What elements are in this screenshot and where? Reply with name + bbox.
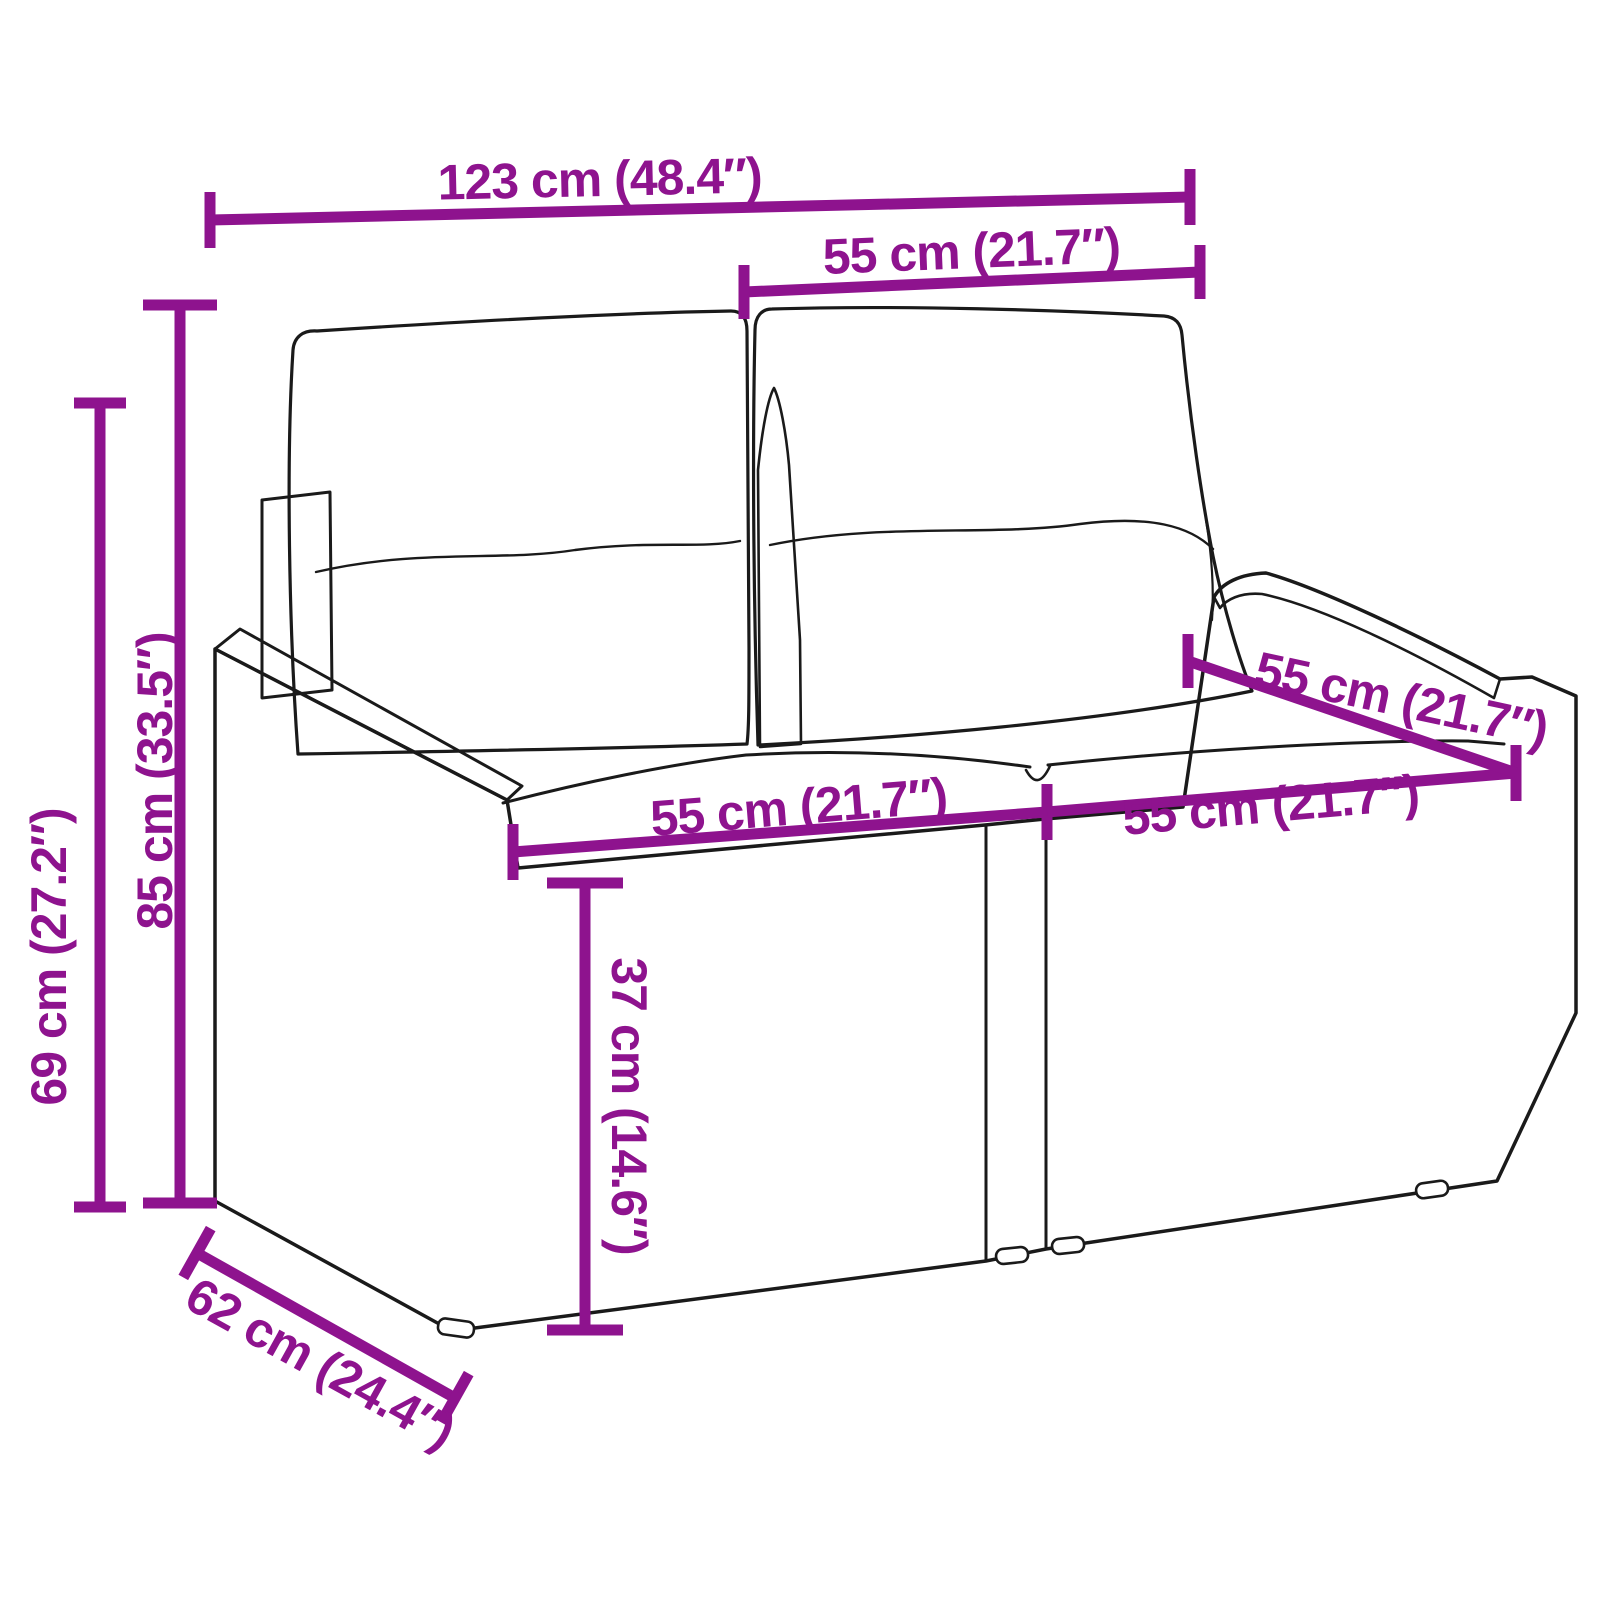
- dim-overall-depth: 62 cm (24.4″): [177, 1229, 469, 1460]
- dim-label: 62 cm (24.4″): [177, 1267, 464, 1460]
- dim-label: 69 cm (27.2″): [21, 808, 77, 1105]
- base-module-seams: [986, 820, 1046, 1260]
- back-cushion-left: [289, 311, 749, 754]
- back-cushion-right-crease: [770, 521, 1213, 549]
- dim-overall-height: 85 cm (33.5″): [127, 305, 217, 1203]
- dim-label: 55 cm (21.7″): [822, 217, 1121, 285]
- dim-back-cushion-width: 55 cm (21.7″): [744, 217, 1200, 319]
- dim-seat-height: 37 cm (14.6″): [547, 883, 657, 1330]
- diagram-stage: 123 cm (48.4″) 55 cm (21.7″) 85 cm (33.5…: [0, 0, 1600, 1600]
- dim-label: 37 cm (14.6″): [601, 957, 657, 1254]
- foot: [1415, 1180, 1449, 1199]
- back-cushion-left-crease: [316, 541, 740, 572]
- sofa-dimension-diagram: 123 cm (48.4″) 55 cm (21.7″) 85 cm (33.5…: [0, 0, 1600, 1600]
- dim-armrest-height: 69 cm (27.2″): [21, 403, 126, 1207]
- dimension-annotations: 123 cm (48.4″) 55 cm (21.7″) 85 cm (33.5…: [21, 147, 1553, 1459]
- back-cushion-right: [754, 308, 1252, 745]
- foot: [1051, 1236, 1084, 1254]
- dim-label: 123 cm (48.4″): [437, 147, 762, 210]
- backrest-left-post: [262, 492, 332, 698]
- backrest-gap-weave: [758, 388, 801, 747]
- foot: [995, 1246, 1028, 1264]
- dim-label: 85 cm (33.5″): [127, 632, 183, 929]
- foot: [437, 1318, 475, 1339]
